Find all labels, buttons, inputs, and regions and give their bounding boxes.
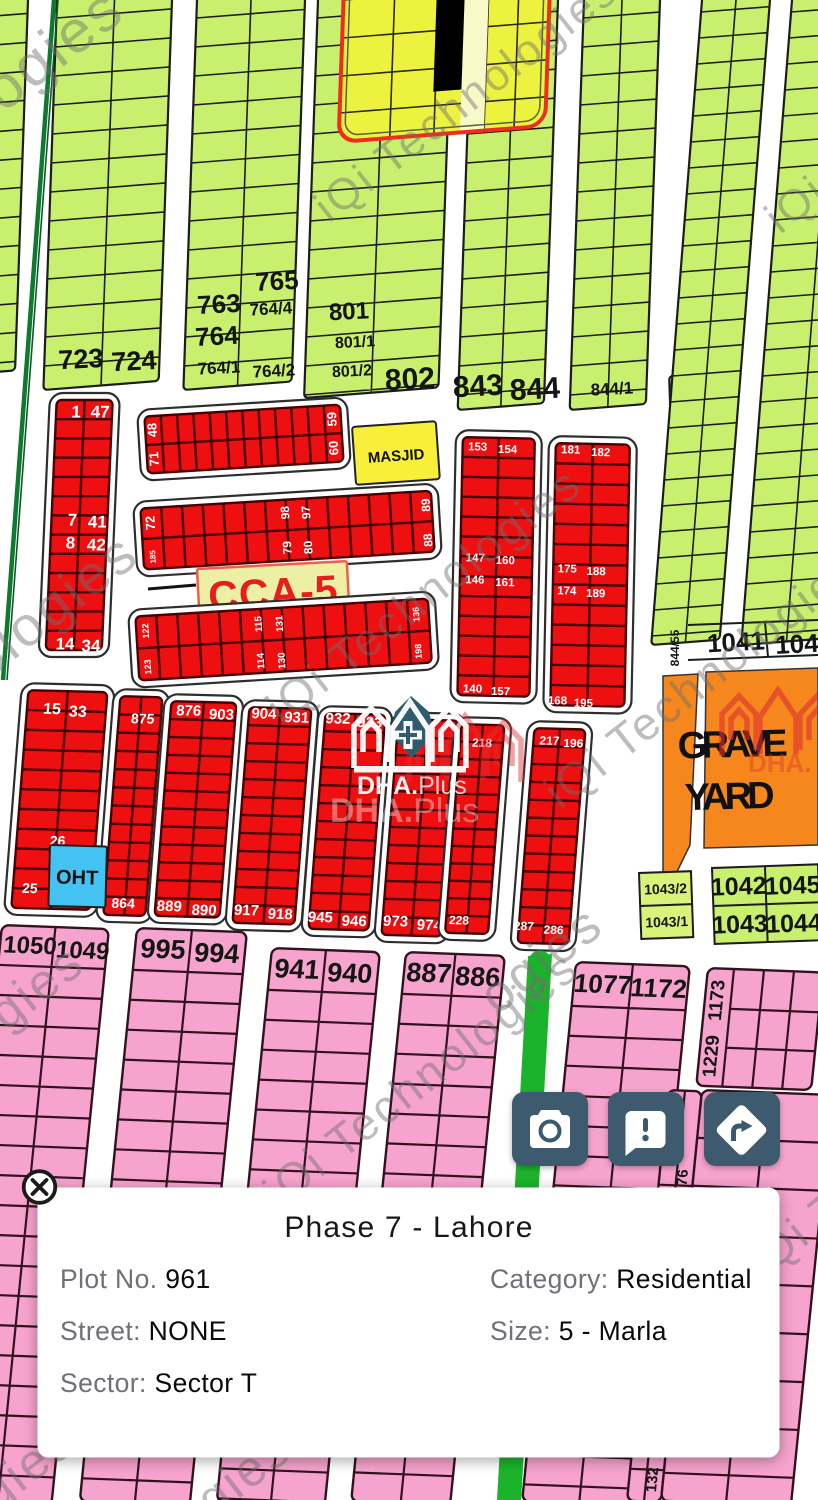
svg-text:801/2: 801/2 xyxy=(332,362,373,381)
svg-text:945: 945 xyxy=(307,909,333,927)
svg-text:71: 71 xyxy=(146,451,162,466)
svg-text:188: 188 xyxy=(586,566,606,578)
svg-text:79: 79 xyxy=(280,540,295,555)
svg-text:946: 946 xyxy=(341,913,367,931)
svg-text:765: 765 xyxy=(254,265,299,297)
svg-text:875: 875 xyxy=(130,710,155,727)
svg-text:764/4: 764/4 xyxy=(249,298,293,319)
svg-text:864: 864 xyxy=(111,895,136,912)
svg-text:60: 60 xyxy=(326,440,342,455)
svg-text:1043: 1043 xyxy=(712,910,769,940)
svg-text:130: 130 xyxy=(276,652,288,670)
svg-text:114: 114 xyxy=(255,652,267,669)
svg-text:161: 161 xyxy=(495,577,515,589)
svg-text:1: 1 xyxy=(71,402,81,421)
svg-text:157: 157 xyxy=(491,686,510,698)
svg-text:1042: 1042 xyxy=(710,872,767,902)
svg-text:80: 80 xyxy=(301,540,316,555)
svg-text:764: 764 xyxy=(194,320,239,352)
svg-text:1044: 1044 xyxy=(766,909,818,939)
svg-text:33: 33 xyxy=(68,703,87,720)
svg-text:DHA.Plus: DHA.Plus xyxy=(330,792,479,830)
svg-text:940: 940 xyxy=(326,957,374,989)
svg-text:217: 217 xyxy=(539,733,560,747)
svg-text:76: 76 xyxy=(673,1169,692,1186)
svg-text:123: 123 xyxy=(142,659,153,675)
svg-text:887: 887 xyxy=(405,957,453,989)
svg-text:802: 802 xyxy=(384,362,436,398)
svg-text:175: 175 xyxy=(557,563,577,575)
svg-text:115: 115 xyxy=(253,615,265,632)
svg-text:Plot No. 961: Plot No. 961 xyxy=(60,1264,211,1294)
svg-text:918: 918 xyxy=(267,906,293,924)
svg-text:917: 917 xyxy=(233,902,259,920)
svg-text:154: 154 xyxy=(498,444,518,456)
svg-text:153: 153 xyxy=(468,441,487,453)
svg-text:995: 995 xyxy=(139,933,187,965)
svg-text:228: 228 xyxy=(448,913,469,927)
svg-text:Sector: Sector T: Sector: Sector T xyxy=(60,1368,257,1398)
svg-text:195: 195 xyxy=(574,698,594,710)
svg-text:89: 89 xyxy=(418,498,433,513)
svg-text:1043/2: 1043/2 xyxy=(644,880,688,897)
svg-text:764/2: 764/2 xyxy=(252,360,295,381)
svg-text:844/55: 844/55 xyxy=(668,629,682,666)
svg-text:181: 181 xyxy=(561,444,581,456)
svg-text:890: 890 xyxy=(191,902,217,920)
svg-text:72: 72 xyxy=(142,515,158,530)
svg-text:Category: Residential: Category: Residential xyxy=(490,1264,752,1294)
svg-text:OHT: OHT xyxy=(56,866,99,889)
svg-text:889: 889 xyxy=(156,898,182,916)
svg-text:1045: 1045 xyxy=(764,871,818,901)
svg-text:25: 25 xyxy=(21,880,38,896)
svg-text:876: 876 xyxy=(176,702,202,720)
svg-text:1229: 1229 xyxy=(699,1035,724,1078)
svg-text:844/1: 844/1 xyxy=(590,378,633,399)
svg-text:97: 97 xyxy=(299,505,314,520)
svg-text:Phase 7 - Lahore: Phase 7 - Lahore xyxy=(284,1211,533,1244)
svg-text:801/1: 801/1 xyxy=(335,333,376,352)
svg-text:7: 7 xyxy=(67,510,77,529)
svg-text:Street: NONE: Street: NONE xyxy=(60,1316,227,1346)
svg-text:131: 131 xyxy=(274,615,286,633)
svg-text:198: 198 xyxy=(413,644,424,660)
svg-text:132: 132 xyxy=(643,1467,662,1493)
svg-text:88: 88 xyxy=(421,533,436,548)
svg-text:189: 189 xyxy=(586,588,605,600)
svg-text:844: 844 xyxy=(509,372,561,408)
svg-text:98: 98 xyxy=(278,505,293,520)
svg-text:764/1: 764/1 xyxy=(197,357,240,378)
svg-text:122: 122 xyxy=(140,623,151,639)
svg-text:843: 843 xyxy=(452,369,504,405)
svg-text:801: 801 xyxy=(328,297,369,326)
svg-text:903: 903 xyxy=(208,706,234,724)
svg-text:34: 34 xyxy=(81,636,101,655)
svg-text:932: 932 xyxy=(325,710,351,728)
svg-text:DHA.: DHA. xyxy=(748,748,812,778)
svg-text:1173: 1173 xyxy=(705,979,730,1021)
svg-text:15: 15 xyxy=(42,701,61,718)
svg-text:994: 994 xyxy=(193,937,241,969)
svg-text:941: 941 xyxy=(273,953,321,985)
svg-text:140: 140 xyxy=(463,683,482,695)
svg-text:174: 174 xyxy=(557,585,577,597)
svg-text:763: 763 xyxy=(196,288,241,320)
svg-text:59: 59 xyxy=(324,411,340,426)
svg-text:Size: 5 - Marla: Size: 5 - Marla xyxy=(490,1316,667,1346)
svg-text:1172: 1172 xyxy=(629,972,688,1004)
svg-text:YARD: YARD xyxy=(684,775,775,819)
svg-text:1043/1: 1043/1 xyxy=(645,913,689,930)
svg-text:723: 723 xyxy=(58,343,105,375)
svg-text:185: 185 xyxy=(148,549,158,563)
svg-text:168: 168 xyxy=(548,695,568,707)
svg-text:182: 182 xyxy=(591,447,610,459)
svg-text:973: 973 xyxy=(382,913,408,931)
svg-text:47: 47 xyxy=(90,402,110,421)
svg-text:724: 724 xyxy=(111,345,158,377)
svg-text:48: 48 xyxy=(144,422,160,437)
